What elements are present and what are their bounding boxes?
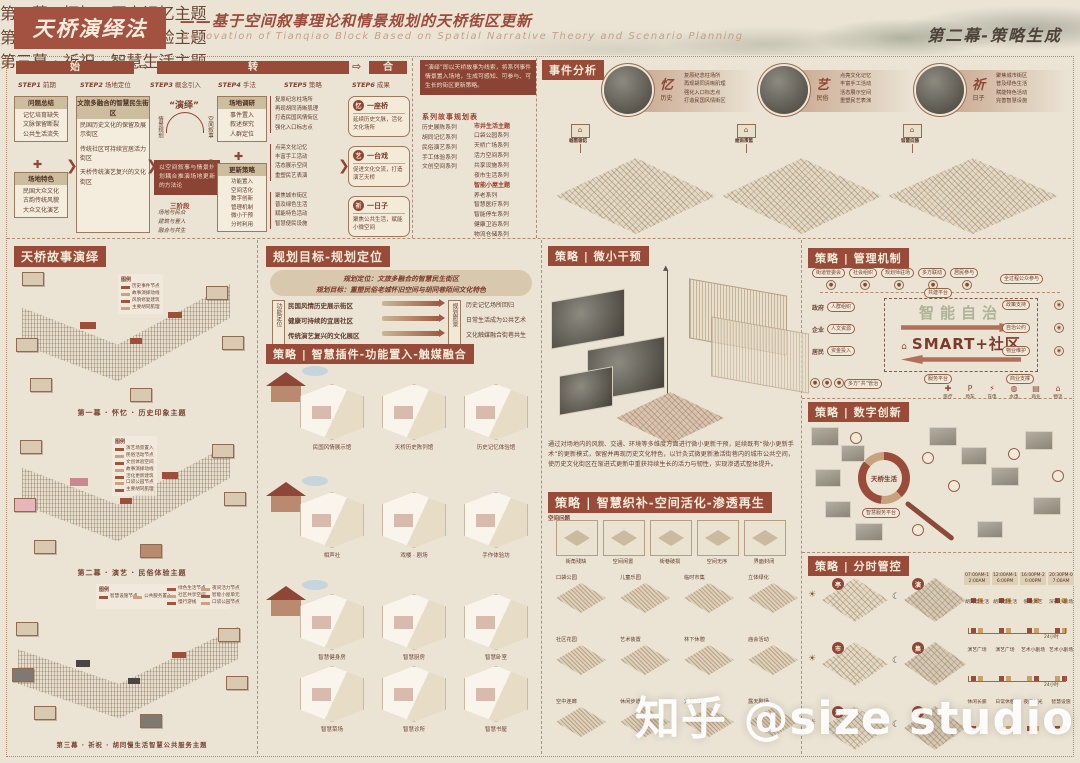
- legend-row: 风貌修复建筑: [121, 298, 160, 305]
- series-item: 健康卫浴系列: [474, 221, 510, 231]
- event-line: 打造民国风情街区: [684, 97, 726, 105]
- deduction-label: “演绎”: [162, 98, 206, 111]
- event-line: 聚焦城市街区: [996, 72, 1027, 80]
- series-item: 夜市生活系列: [474, 172, 510, 182]
- legend-row: 民俗活动节点: [115, 453, 154, 460]
- org-icon: ●: [822, 378, 832, 388]
- actor-pill: 人文资源: [827, 324, 855, 334]
- planning-pill: 规划定位：文旅多融合的智慧民生街区 规划目标：重塑民俗老城怀旧空间与胡同巷陌间文…: [270, 270, 532, 296]
- event-line: 赋能特色活动: [996, 89, 1027, 97]
- schedule-header-cell: 16:00PM-20:00PM: [1020, 572, 1046, 585]
- tactic-item: 复原纪念柱场所: [275, 96, 341, 105]
- legend-chip: [167, 602, 176, 605]
- legend-row: 口袋公园节点: [201, 600, 227, 607]
- series-list-b: 养老系列智慧医疗系列智能停车系列健康卫浴系列物流仓储系列: [474, 192, 510, 241]
- sketch-node: [930, 428, 956, 445]
- legend-chip: [115, 455, 124, 458]
- legend-chip: [121, 300, 130, 303]
- problem-item: 记忆培育缺失: [18, 111, 64, 120]
- problem-thumb: 街角残缺: [556, 520, 596, 565]
- callout-block: [22, 272, 44, 286]
- divider: [257, 240, 258, 754]
- schedule-header-cell: 12:00AM-16:00PM: [992, 572, 1018, 585]
- solution-vignette: 儿童乐园: [620, 574, 670, 613]
- facility-icon: ⚡: [982, 384, 1002, 394]
- actor-pill: 人群组织: [827, 302, 855, 312]
- legend-chip: [115, 462, 124, 465]
- series-item: 物流仓储系列: [474, 231, 510, 241]
- facility-icon: P: [960, 384, 980, 394]
- scene-card-2: 艺一台戏 促进文化交流，打造演艺天桥: [348, 146, 410, 187]
- callout-block: [222, 336, 244, 350]
- site-title: 场地特色: [15, 173, 67, 185]
- circle-node: [1008, 448, 1020, 460]
- micro-paragraph: 通过对场地内的风貌、交通、环境等多维度方面进行微小更新干预，延续既有“微小更新手…: [548, 440, 794, 470]
- scene-title: 一座桥: [367, 101, 388, 111]
- map-accent: [128, 678, 140, 684]
- phase-start: 始: [16, 61, 134, 74]
- schedule-cell: 胡同慢生活: [992, 600, 1018, 606]
- room-caption: 手作体验坊: [464, 551, 528, 559]
- research-item: 叙述探究: [221, 120, 263, 129]
- series-item: 活力空间系列: [474, 152, 510, 162]
- person-icon: ●: [826, 280, 836, 290]
- plus-icon: ✚: [234, 150, 243, 163]
- house-icon: ⌂: [901, 342, 907, 352]
- legend-chip: [115, 482, 124, 485]
- series-list-a: 口袋公园系列天桥广场系列活力空间系列共享设施系列夜市生活系列: [474, 132, 510, 181]
- callout-block: [226, 676, 248, 690]
- support-pill: 政策支持: [1002, 300, 1030, 310]
- facility-icon: ✚: [938, 384, 958, 394]
- events-title: 事件分析: [542, 60, 604, 80]
- strategy-item: 功能置入: [221, 178, 263, 187]
- site-box: 场地特色 民国大众文化古韵传统风貌大众文化演艺: [14, 172, 68, 218]
- legend-chip: [167, 588, 176, 591]
- arrow-bar: [382, 331, 440, 336]
- problem-thumb: 空间闲置: [603, 520, 643, 565]
- micro-title: 策略 | 微小干预: [548, 246, 649, 266]
- stakeholder-pill: 街道管委会: [812, 268, 845, 278]
- stakeholder-pill: 社会组织: [849, 268, 877, 278]
- legend-row: 智慧设施节点: [99, 594, 125, 601]
- legend-row: 历史事件节点: [121, 284, 160, 291]
- scene-title: 一台戏: [367, 151, 388, 161]
- deduction-right-label: 空间叙事: [206, 116, 214, 138]
- house-icon: ⌂: [571, 124, 590, 138]
- research-list: 事件置入叙述探究人群定位: [221, 111, 263, 139]
- legend-chip: [115, 448, 124, 451]
- tactic-item: 普及绿色生活: [275, 201, 341, 210]
- problems-box: 问题总结 记忆培育缺失文脉保留断裂公共生活流失: [14, 96, 68, 142]
- legend-row: 主要胡同肌理: [121, 305, 160, 312]
- callout-block: [206, 286, 228, 300]
- circle-node: [912, 524, 924, 536]
- callout-block: [140, 714, 162, 728]
- legend-chip: [121, 307, 130, 310]
- event-seal-3: 祈 日子: [972, 74, 985, 102]
- solution-vignette: 空中连廊: [556, 698, 606, 737]
- solution-vignette: 庙会活动: [748, 636, 798, 675]
- event-photo-1: [604, 66, 652, 114]
- vision-item: 传统社区可持续宜居活力街区: [80, 145, 146, 164]
- moon-icon: ☾: [892, 656, 900, 666]
- planning-left-label: 功能定位: [272, 300, 285, 346]
- poster-subtitle-cn: ——基于空间叙事理论和情景规划的天桥街区更新: [180, 10, 532, 31]
- poster-subtitle-en: Renovation of Tianqiao Block Based on Sp…: [182, 31, 744, 42]
- tactics-group-2: 点亮文化记忆丰富手工活动活态展示空间重塑民艺表演: [270, 144, 341, 181]
- event-sign: ⌂邻里广场: [902, 124, 922, 153]
- room-caption: 智慧健身房: [300, 653, 364, 661]
- sketch-node: [812, 428, 838, 445]
- house-icon: ⌂: [737, 124, 756, 138]
- solution-vignette: 林下休憩: [684, 636, 734, 675]
- cloud-icon: [302, 580, 328, 590]
- legend-chip: [99, 596, 108, 599]
- circle-node: [922, 452, 934, 464]
- stakeholder-pill: 多方联动: [918, 268, 946, 278]
- person-icon: ●: [894, 280, 904, 290]
- digital-title: 策略 | 数字创新: [808, 402, 909, 422]
- research-item: 事件置入: [221, 111, 263, 120]
- problem-thumb: 街巷破损: [650, 520, 690, 565]
- callout-block: [16, 622, 38, 636]
- cloud-icon: [302, 366, 328, 376]
- vision-title: 文旅多融合的智慧民生街区: [77, 97, 149, 119]
- actor-label: 政府: [812, 303, 824, 312]
- event-lines-2: 点亮文化记忆丰富手工活动活态展示空间重塑民艺表演: [840, 72, 871, 105]
- scene-desc: 聚焦公共生活，赋能小微空间: [353, 216, 405, 233]
- solution-vignette: 艺术装置: [620, 636, 670, 675]
- deduction-left-label: 情景规划: [156, 116, 164, 138]
- series-right-col: 市井生活主题 口袋公园系列天桥广场系列活力空间系列共享设施系列夜市生活系列 智能…: [474, 122, 510, 241]
- scene-desc: 促进文化交流，打造演艺天桥: [353, 166, 405, 183]
- room-caption: 戏楼 · 剧场: [382, 551, 446, 559]
- step-1: STEP1前期: [18, 79, 56, 89]
- stage-item: 建筑与置入: [158, 218, 186, 227]
- schedule-cell: 演艺广场: [992, 648, 1018, 654]
- circle-node: [850, 432, 862, 444]
- tactic-item: 赋能特色活动: [275, 210, 341, 219]
- tactics-group-3: 聚焦城市街区普及绿色生活赋能特色活动智慧便民设施: [270, 192, 341, 229]
- room-caption: 智慧诊所: [382, 725, 446, 733]
- schedule-cell: 演艺广场: [964, 648, 990, 654]
- sketch-node: [992, 468, 1018, 485]
- watermark: 知乎 @size studio: [635, 682, 1074, 747]
- support-pill: 物业维护: [1002, 346, 1030, 356]
- legend-row: 演艺场景置入: [115, 446, 154, 453]
- callout-block: [34, 706, 56, 720]
- legend-chip: [201, 595, 210, 598]
- legend-row: 文创体验空间: [115, 460, 154, 467]
- callout-block: [224, 492, 246, 506]
- platform-pill-bottom: 服务平台: [924, 374, 952, 384]
- vision-box: 文旅多融合的智慧民生街区 民国历史文化的保留及展示街区传统社区可持续宜居活力街区…: [76, 96, 150, 233]
- poster-title-block: 天桥演绎法: [14, 7, 166, 49]
- map-accent: [76, 660, 90, 667]
- legend-row: 绿色生活节点: [167, 586, 193, 593]
- scene-card-3: 祈一日子 聚焦公共生活，赋能小微空间: [348, 196, 410, 237]
- scene-card-1: 忆一座桥 延续历史文脉，活化文化场所: [348, 96, 410, 137]
- schedule-cell: 艺术小剧场: [1020, 648, 1046, 654]
- callout-block: [14, 498, 36, 512]
- map-accent: [80, 322, 96, 329]
- sketch-node: [826, 502, 850, 517]
- schedule-cell: 胡同慢生活: [964, 600, 990, 606]
- time-title: 策略 | 分时管控: [808, 556, 909, 576]
- strategy-box: 更新策略 功能置入空间活化数字创新管理机制微小干预分时利用: [217, 163, 267, 232]
- schedule-header-cell: 07:00AM-12:00AM: [964, 572, 990, 585]
- tactic-item: 智慧便民设施: [275, 220, 341, 229]
- step-3: STEP3概念引入: [150, 79, 201, 89]
- facility-item: ▤商业: [1026, 384, 1046, 400]
- series-item: 口袋公园系列: [474, 132, 510, 142]
- tactics-group-1: 复原纪念柱场所再现胡同清晰肌理打造民国风情街区强化入口标志点: [270, 96, 341, 133]
- solution-vignette: 临时市集: [684, 574, 734, 613]
- story-legend-2: 图例 演艺场景置入民俗活动节点文创体验空间故事演绎动线活化更新建筑口袋公园节点主…: [112, 436, 157, 496]
- divider: [541, 240, 542, 754]
- story-title: 天桥故事演绎: [14, 246, 106, 267]
- time-seal: 亭: [832, 578, 844, 590]
- callout-block: [130, 388, 152, 402]
- event-line: 再现胡同清晰肌理: [684, 80, 726, 88]
- site-item: 大众文化演艺: [18, 206, 64, 215]
- scene-desc: 延续历史文脉，活化文化场所: [353, 116, 405, 133]
- schedule-cell: 艺术小剧场: [1048, 648, 1074, 654]
- org-icon: ●: [810, 378, 820, 388]
- commerce-pill: 商业支撑: [1006, 374, 1034, 384]
- stakeholder-pill: 居民参与: [950, 268, 978, 278]
- event-line: 点亮文化记忆: [840, 72, 871, 80]
- facility-item: ⚡充电: [982, 384, 1002, 400]
- strategy-item: 微小干预: [221, 212, 263, 221]
- room-caption: 智慧厨房: [382, 653, 446, 661]
- site-item: 古韵传统风貌: [18, 196, 64, 205]
- map-accent: [130, 338, 142, 344]
- co-governance-pill: 多方“共”管治: [844, 379, 882, 389]
- time-seal: 演: [912, 578, 924, 590]
- house-icon: ⌂: [903, 124, 922, 138]
- solution-vignette: 立体绿化: [748, 574, 798, 613]
- strategy-item: 空间活化: [221, 187, 263, 196]
- right-icons-col: ◉◉◉: [1054, 300, 1064, 356]
- vision-item: 民国历史文化的保留及展示街区: [80, 121, 146, 140]
- axon-axis-tip: ▲: [663, 264, 668, 272]
- facility-item: ◍水电: [1004, 384, 1024, 400]
- research-item: 人群定位: [221, 130, 263, 139]
- series-title: 系列故事规划表: [422, 112, 478, 122]
- callout-block: [20, 440, 42, 454]
- vision-item: 天桥传统演艺复兴的文化街区: [80, 168, 146, 187]
- arrow-bar: [382, 316, 440, 321]
- poster-title: 天桥演绎法: [33, 13, 148, 43]
- actor-label: 企业: [812, 325, 824, 334]
- legend-chip: [115, 476, 124, 479]
- stakeholder-pill: 规划师驻场: [881, 268, 914, 278]
- manage-title: 策略 | 管理机制: [808, 248, 909, 268]
- event-line: 复原纪念柱场所: [684, 72, 726, 80]
- property-icon: ◉: [1054, 346, 1064, 356]
- map-accent: [162, 472, 178, 479]
- sun-icon: ☀: [808, 590, 816, 600]
- vision-list: 民国历史文化的保留及展示街区传统社区可持续宜居活力街区天桥传统演艺复兴的文化街区: [80, 121, 146, 187]
- tactic-item: 再现胡同清晰肌理: [275, 105, 341, 114]
- callout-block: [34, 540, 56, 554]
- event-photo-3: [916, 66, 964, 114]
- planning-row-1-right: 历史记忆场所回归: [466, 300, 514, 309]
- pact-icon: ◉: [1054, 323, 1064, 333]
- tactic-item: 聚焦城市街区: [275, 192, 341, 201]
- moon-icon: ☾: [892, 592, 900, 602]
- problem-item: 文脉保留断裂: [18, 120, 64, 129]
- schedule-cell: 深夜小剧场: [1048, 600, 1074, 606]
- facility-item: ✚医疗: [938, 384, 958, 400]
- problem-thumb: 界面封闭: [744, 520, 784, 565]
- divider: [536, 58, 537, 238]
- room-caption: 历史记忆体验馆: [464, 443, 528, 451]
- facility-icon: ⌂: [1048, 384, 1068, 394]
- legend-chip: [167, 595, 176, 598]
- room-caption: 相声社: [300, 551, 364, 559]
- strategy-item: 分时利用: [221, 221, 263, 230]
- sketch-node: [856, 524, 882, 540]
- step-5: STEP5策略: [284, 79, 322, 89]
- series-item: 天桥广场系列: [474, 142, 510, 152]
- sketch-node: [816, 470, 840, 486]
- legend-chip: [121, 293, 130, 296]
- divider: [801, 240, 802, 754]
- planning-row-3-left: 传统演艺复兴的文化展区: [288, 330, 360, 340]
- problems-list: 记忆培育缺失文脉保留断裂公共生活流失: [18, 111, 64, 139]
- strategy-item: 数字创新: [221, 195, 263, 204]
- callout-block: [218, 628, 240, 642]
- callout-block: [12, 668, 34, 682]
- cycle-arrow-left: [901, 355, 1021, 364]
- stage-item: 融合与共生: [158, 227, 186, 236]
- cloud-icon: [302, 476, 328, 486]
- sketch-node: [978, 522, 1002, 537]
- series-item: 手工体验系列: [422, 154, 457, 164]
- series-item: 养老系列: [474, 192, 510, 202]
- site-item: 民国大众文化: [18, 187, 64, 196]
- schedule-headers: 07:00AM-12:00AM12:00AM-16:00PM16:00PM-20…: [964, 572, 1074, 585]
- legend-row: 慢行游线: [167, 600, 193, 607]
- tactic-item: 强化入口标志点: [275, 124, 341, 133]
- arrow-bar: [382, 301, 440, 306]
- story-caption-2: 第二幕 · 演艺 · 民俗体验主题: [14, 568, 250, 578]
- phase-end: 合: [369, 61, 407, 74]
- tactic-item: 点亮文化记忆: [275, 144, 341, 153]
- scene-title: 一日子: [367, 201, 388, 211]
- room-caption: 智慧菜场: [300, 725, 364, 733]
- planning-right-label: 规划愿景: [448, 300, 461, 346]
- weave-title: 策略 | 智慧织补-空间活化-渗透再生: [548, 492, 772, 513]
- circle-node: [948, 480, 960, 492]
- legend-chip: [201, 588, 210, 591]
- weave-row-2: 社区花园艺术装置林下休憩庙会活动: [556, 636, 798, 675]
- digital-ring: 天桥生活: [858, 452, 910, 504]
- schedule-row-2: 演艺广场演艺广场艺术小剧场艺术小剧场: [964, 648, 1074, 654]
- legend-row: 故事演绎动线: [115, 467, 154, 474]
- weave-row-1: 口袋公园儿童乐园临时市集立体绿化: [556, 574, 798, 613]
- support-pill: 自治公约: [1002, 323, 1030, 333]
- deduction-stages: 场地与民众建筑与置入融合与共生: [158, 209, 186, 235]
- event-seal-2: 艺 民俗: [816, 74, 829, 102]
- room-caption: 智慧卧室: [464, 653, 528, 661]
- plugin-title: 策略 | 智慧插件-功能置入-触媒融合: [266, 344, 474, 364]
- step-6: STEP6成果: [352, 79, 390, 89]
- callout-block: [212, 444, 234, 458]
- story-legend-1: 图例 历史事件节点故事演绎动线风貌修复建筑主要胡同肌理: [118, 274, 163, 314]
- tactic-item: 打造民国风情街区: [275, 114, 341, 123]
- legend-chip: [115, 489, 124, 492]
- seal-icon: 忆: [353, 100, 364, 111]
- strategy-item: 管理机制: [221, 204, 263, 213]
- schedule-header-cell: 20:30PM-07:00AM: [1048, 572, 1074, 585]
- event-seal-1: 忆 历史: [660, 74, 673, 102]
- room-caption: 天桥历史陈列馆: [382, 443, 446, 451]
- solution-vignette: 社区花园: [556, 636, 606, 675]
- schedule-row-1: 胡同慢生活胡同慢生活傍晚演艺深夜小剧场: [964, 600, 1074, 606]
- step-2: STEP2场地定位: [80, 79, 131, 89]
- room-caption: 民国风情展示馆: [300, 443, 364, 451]
- series-left-list: 历史展陈系列胡同记忆系列民俗演艺系列手工体验系列文创空间系列: [422, 124, 457, 173]
- actor-label: 居民: [812, 347, 824, 356]
- facility-icon: ▤: [1026, 384, 1046, 394]
- circle-node: [1052, 470, 1064, 482]
- sketch-node: [842, 446, 864, 461]
- poster-board: 天桥演绎法 ——基于空间叙事理论和情景规划的天桥街区更新 Renovation …: [0, 0, 1080, 763]
- public-participation-pill: 全过程公众参与: [1000, 274, 1043, 284]
- digital-sub-pill: 智慧服务平台: [862, 508, 900, 518]
- story-legend-3: 图例 智慧设施节点公共服务置入绿色生活节点社区共享空间慢行游线夜间活力节点智能小…: [96, 584, 230, 609]
- legend-chip: [115, 469, 124, 472]
- site-list: 民国大众文化古韵传统风貌大众文化演艺: [18, 187, 64, 215]
- seal-icon: 艺: [353, 150, 364, 161]
- story-caption-3: 第三幕 · 祈祝 · 胡同慢生活智慧公共服务主题: [14, 740, 250, 749]
- event-line: 重塑民艺表演: [840, 97, 871, 105]
- act-title: 第二幕-策略生成: [927, 22, 1062, 46]
- time-seal: 市: [832, 642, 844, 654]
- divider: [802, 552, 1072, 553]
- event-line: 完善智慧设施: [996, 97, 1027, 105]
- schedule-cell: 傍晚演艺: [1020, 600, 1046, 606]
- event-line: 活态展示空间: [840, 89, 871, 97]
- sun-icon: ☀: [808, 654, 816, 664]
- problem-item: 公共生活流失: [18, 130, 64, 139]
- callout-block: [140, 544, 162, 558]
- series-subhead-a: 市井生活主题: [474, 122, 510, 132]
- facilities-row: ✚医疗P停车⚡充电◍水电▤商业⌂物流: [938, 384, 1068, 400]
- map-accent: [168, 312, 182, 318]
- sketch-node: [1026, 432, 1052, 449]
- plus-icon: ✚: [33, 158, 42, 171]
- room-caption: 智慧书屋: [464, 725, 528, 733]
- series-item: 共享设施系列: [474, 162, 510, 172]
- actor-row-1: 政府 人群组织: [812, 302, 855, 312]
- series-item: 文创空间系列: [422, 163, 457, 173]
- research-title: 场地调研: [218, 97, 266, 109]
- planning-goal: 规划目标：重塑民俗老城怀旧空间与胡同巷陌间文化特色: [316, 284, 486, 294]
- person-icon: ●: [962, 280, 972, 290]
- problems-title: 问题总结: [15, 97, 67, 109]
- legend-row: 故事演绎动线: [121, 291, 160, 298]
- person-icon: ●: [860, 280, 870, 290]
- schedule-bracket-tag: 24小时: [1044, 634, 1059, 640]
- series-item: 智能停车系列: [474, 211, 510, 221]
- divider: [7, 238, 1071, 239]
- research-box: 场地调研 事件置入叙述探究人群定位: [217, 96, 267, 142]
